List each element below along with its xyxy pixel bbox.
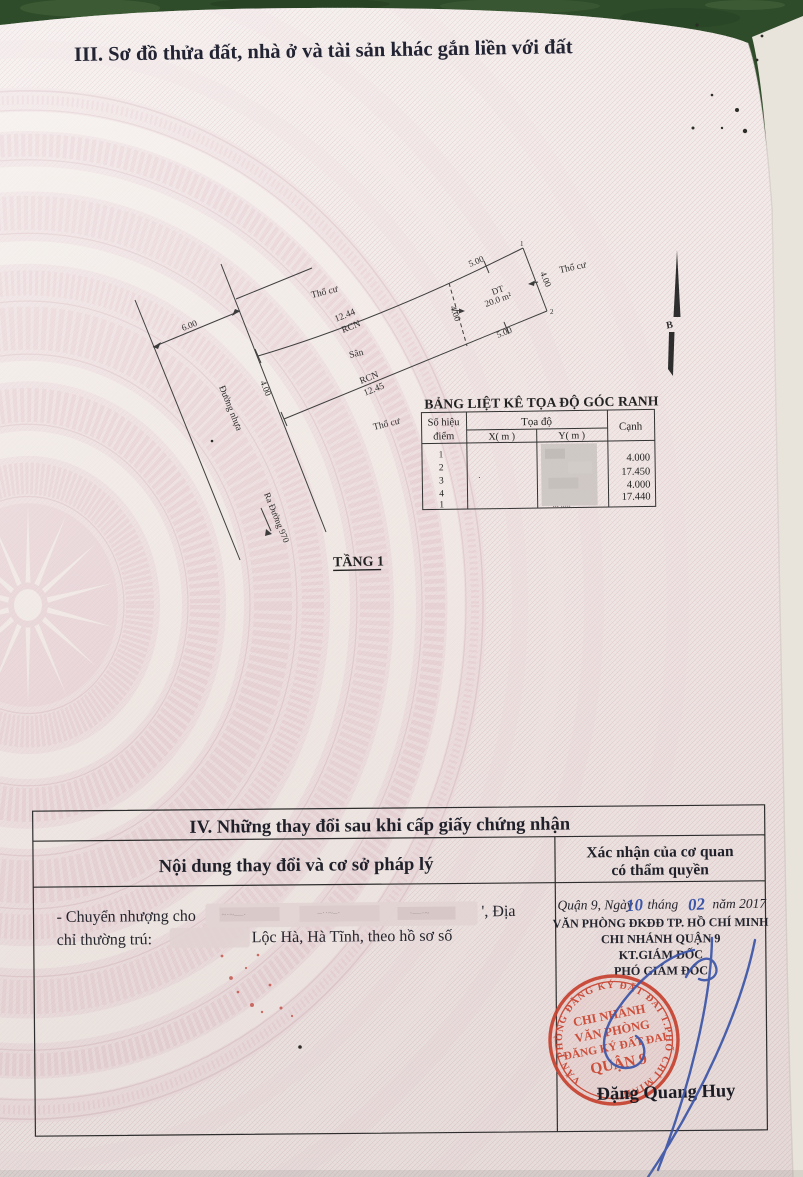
svg-text:Số hiệu: Số hiệu — [428, 417, 461, 428]
svg-text:17.450: 17.450 — [621, 466, 650, 477]
svg-text:... .....: ... ..... — [553, 500, 571, 509]
svg-text:Nội dung thay đổi và cơ sở phá: Nội dung thay đổi và cơ sở pháp lý — [159, 854, 435, 877]
svg-text:Đặng Quang Huy: Đặng Quang Huy — [596, 1081, 736, 1105]
svg-text:TẦNG 1: TẦNG 1 — [333, 553, 384, 571]
svg-text:VĂN PHÒNG ĐKĐĐ TP. HỒ CHÍ MINH: VĂN PHÒNG ĐKĐĐ TP. HỒ CHÍ MINH — [553, 914, 769, 931]
svg-text:có thẩm quyền: có thẩm quyền — [611, 861, 709, 879]
svg-text:·—·~: ·—·~ — [409, 908, 429, 918]
svg-text:năm 2017: năm 2017 — [712, 896, 767, 911]
svg-text:- Chuyển nhượng cho: - Chuyển nhượng cho — [56, 908, 195, 926]
svg-text:3: 3 — [439, 476, 444, 486]
svg-text:1: 1 — [439, 450, 444, 460]
svg-text:Cạnh: Cạnh — [619, 421, 643, 433]
svg-text:BẢNG LIỆT KÊ TỌA ĐỘ GÓC RANH: BẢNG LIỆT KÊ TỌA ĐỘ GÓC RANH — [424, 392, 659, 411]
svg-text:CHI NHÁNH QUẬN 9: CHI NHÁNH QUẬN 9 — [601, 931, 721, 946]
svg-text:Quận 9, Ngày: Quận 9, Ngày — [557, 897, 633, 913]
svg-text:X( m ): X( m ) — [488, 431, 515, 442]
svg-text:~·~—·: ~·~—· — [221, 909, 246, 919]
svg-text:–··~–·: –··~–· — [316, 908, 340, 918]
svg-text:tháng: tháng — [647, 897, 678, 912]
svg-text:chỉ thường trú:: chỉ thường trú: — [57, 931, 152, 949]
svg-text:2: 2 — [439, 463, 444, 473]
svg-text:Xác nhận của cơ quan: Xác nhận của cơ quan — [586, 843, 734, 861]
svg-text:IV. Những thay đổi sau khi cấp: IV. Những thay đổi sau khi cấp giấy chứn… — [189, 815, 571, 838]
svg-text:Tọa độ: Tọa độ — [521, 416, 553, 428]
svg-text:4.000: 4.000 — [627, 479, 651, 490]
svg-text:10: 10 — [625, 895, 644, 915]
svg-text:4.000: 4.000 — [626, 452, 650, 463]
svg-text:4: 4 — [439, 489, 444, 499]
svg-text:2: 2 — [550, 308, 554, 316]
svg-text:Lộc Hà, Hà Tĩnh, theo hồ sơ số: Lộc Hà, Hà Tĩnh, theo hồ sơ số — [252, 928, 453, 947]
svg-text:KT.GIÁM ĐỐC: KT.GIÁM ĐỐC — [619, 946, 704, 962]
svg-text:.: . — [478, 471, 480, 480]
svg-text:17.440: 17.440 — [622, 491, 651, 502]
svg-text:1: 1 — [439, 500, 444, 510]
svg-text:1: 1 — [520, 240, 524, 248]
svg-text:điểm: điểm — [433, 431, 454, 442]
svg-text:Y( m ): Y( m ) — [558, 430, 585, 441]
svg-text:02: 02 — [687, 894, 706, 914]
svg-text:', Địa: ', Địa — [481, 903, 515, 920]
